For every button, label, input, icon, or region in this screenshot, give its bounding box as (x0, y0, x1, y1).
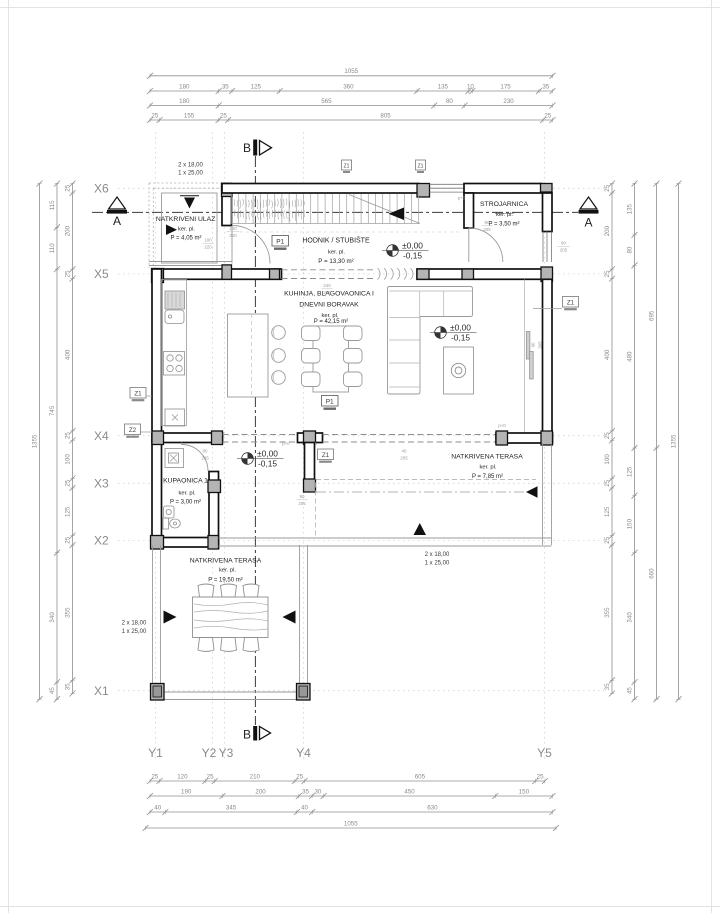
svg-text:120: 120 (177, 773, 188, 780)
svg-text:90: 90 (531, 342, 536, 347)
svg-text:Y2: Y2 (202, 746, 217, 760)
svg-text:KUPAONICA 1: KUPAONICA 1 (163, 478, 208, 485)
svg-text:45: 45 (627, 687, 634, 694)
svg-text:25: 25 (207, 773, 214, 780)
svg-text:205: 205 (298, 501, 306, 506)
svg-text:695: 695 (649, 310, 656, 321)
svg-text:X6: X6 (94, 182, 109, 196)
svg-text:125: 125 (604, 506, 611, 517)
svg-text:100: 100 (65, 454, 72, 465)
svg-text:35: 35 (604, 683, 611, 690)
svg-text:25: 25 (604, 270, 611, 277)
svg-text:DNEVNI BORAVAK: DNEVNI BORAVAK (299, 302, 359, 309)
svg-text:40: 40 (154, 804, 161, 811)
svg-text:240: 240 (323, 283, 331, 288)
svg-text:ker. pl.: ker. pl. (496, 212, 513, 218)
svg-text:10: 10 (467, 83, 474, 90)
svg-text:100: 100 (204, 238, 212, 243)
svg-text:125: 125 (65, 506, 72, 517)
svg-text:210: 210 (250, 773, 261, 780)
svg-text:745: 745 (49, 405, 56, 416)
svg-text:25: 25 (604, 479, 611, 486)
svg-text:660: 660 (649, 568, 656, 579)
svg-text:25: 25 (537, 773, 544, 780)
svg-text:±0,00: ±0,00 (402, 241, 423, 251)
svg-text:P1: P1 (276, 239, 284, 246)
svg-text:25: 25 (604, 184, 611, 191)
svg-text:80: 80 (203, 449, 208, 454)
svg-text:p+0: p+0 (282, 441, 290, 446)
svg-text:30: 30 (314, 788, 321, 795)
svg-text:25: 25 (65, 270, 72, 277)
svg-text:100: 100 (604, 454, 611, 465)
svg-text:205: 205 (538, 341, 543, 349)
svg-text:p+0: p+0 (498, 423, 506, 428)
svg-text:345: 345 (226, 804, 237, 811)
svg-text:125: 125 (251, 83, 262, 90)
svg-text:1 x 25,00: 1 x 25,00 (122, 629, 147, 635)
svg-text:P = 3,00 m²: P = 3,00 m² (170, 500, 201, 506)
svg-text:±0,00: ±0,00 (450, 323, 471, 333)
svg-text:2 x 18,00: 2 x 18,00 (178, 163, 203, 169)
svg-text:2 x 18,00: 2 x 18,00 (122, 621, 147, 627)
svg-text:1355: 1355 (32, 434, 39, 448)
svg-text:480: 480 (627, 351, 634, 362)
svg-text:Z1: Z1 (567, 300, 575, 307)
svg-text:360: 360 (343, 83, 354, 90)
svg-text:45: 45 (49, 687, 56, 694)
svg-text:1 x 25,00: 1 x 25,00 (178, 171, 203, 177)
svg-text:P = 7,85 m²: P = 7,85 m² (472, 474, 503, 480)
svg-text:X4: X4 (94, 429, 109, 443)
svg-text:180: 180 (179, 98, 190, 105)
svg-text:90: 90 (561, 241, 566, 246)
svg-text:P = 19,50 m²: P = 19,50 m² (208, 578, 242, 584)
svg-text:Z2: Z2 (129, 427, 137, 434)
svg-text:X1: X1 (94, 684, 109, 698)
svg-text:180: 180 (179, 83, 190, 90)
svg-text:25: 25 (65, 479, 72, 486)
svg-text:155: 155 (184, 112, 195, 119)
svg-text:25: 25 (296, 773, 303, 780)
svg-text:P = 3,50 m²: P = 3,50 m² (488, 222, 519, 228)
svg-text:205: 205 (323, 290, 331, 295)
svg-text:ker. pl.: ker. pl. (321, 313, 338, 319)
svg-text:25: 25 (220, 112, 227, 119)
svg-text:205: 205 (560, 248, 568, 253)
svg-text:190: 190 (181, 788, 192, 795)
svg-text:Y4: Y4 (296, 746, 311, 760)
svg-text:1055: 1055 (344, 820, 358, 827)
svg-text:Z1: Z1 (322, 452, 330, 459)
svg-text:B: B (243, 728, 251, 742)
svg-text:2 x 18,00: 2 x 18,00 (425, 552, 450, 558)
svg-text:220: 220 (229, 233, 237, 238)
svg-text:135: 135 (627, 203, 634, 214)
svg-text:35: 35 (542, 83, 549, 90)
svg-text:-0,15: -0,15 (451, 333, 470, 343)
svg-text:220: 220 (204, 245, 212, 250)
svg-text:25: 25 (604, 432, 611, 439)
svg-text:115: 115 (49, 200, 56, 210)
svg-text:A: A (584, 216, 592, 230)
svg-text:205: 205 (483, 227, 491, 232)
svg-text:A: A (113, 214, 121, 228)
svg-text:450: 450 (404, 788, 415, 795)
svg-text:X5: X5 (94, 267, 109, 281)
svg-text:ker. pl.: ker. pl. (328, 250, 345, 256)
svg-text:ker. pl.: ker. pl. (178, 226, 195, 232)
svg-text:100: 100 (229, 226, 237, 231)
svg-text:355: 355 (604, 607, 611, 618)
svg-text:P = 13,30 m²: P = 13,30 m² (318, 258, 353, 265)
svg-text:25: 25 (65, 536, 72, 543)
svg-text:P = 4,05 m²: P = 4,05 m² (170, 235, 201, 241)
svg-text:-0,15: -0,15 (258, 459, 277, 469)
svg-text:630: 630 (427, 804, 438, 811)
svg-text:ker. pl.: ker. pl. (219, 568, 236, 574)
svg-text:110: 110 (49, 243, 56, 253)
svg-text:Z1: Z1 (418, 164, 424, 170)
svg-text:ker. pl.: ker. pl. (178, 491, 195, 497)
svg-text:125: 125 (627, 466, 634, 477)
svg-text:605: 605 (415, 773, 426, 780)
svg-text:565: 565 (321, 98, 332, 105)
svg-text:35: 35 (302, 788, 309, 795)
svg-text:175: 175 (500, 83, 511, 90)
svg-text:Y5: Y5 (537, 746, 552, 760)
svg-text:90: 90 (300, 494, 305, 499)
svg-text:Z1: Z1 (344, 164, 350, 170)
svg-text:NATKRIVENA TERASA: NATKRIVENA TERASA (451, 454, 523, 461)
svg-text:X2: X2 (94, 534, 109, 548)
svg-text:25: 25 (544, 112, 551, 119)
svg-text:1355: 1355 (671, 434, 678, 448)
svg-text:40: 40 (301, 804, 308, 811)
svg-text:1055: 1055 (344, 68, 358, 75)
svg-text:HODNIK / STUBIŠTE: HODNIK / STUBIŠTE (302, 236, 370, 245)
svg-text:Y1: Y1 (148, 746, 163, 760)
svg-text:340: 340 (627, 612, 634, 623)
svg-text:90: 90 (485, 220, 490, 225)
svg-text:35: 35 (65, 683, 72, 690)
svg-text:340: 340 (49, 612, 56, 623)
svg-text:35: 35 (222, 83, 229, 90)
svg-text:355: 355 (65, 607, 72, 618)
svg-text:40: 40 (402, 449, 407, 454)
svg-text:805: 805 (380, 112, 391, 119)
svg-text:400: 400 (604, 349, 611, 360)
svg-text:B: B (243, 141, 251, 155)
svg-text:25: 25 (151, 773, 158, 780)
svg-text:205: 205 (201, 456, 209, 461)
svg-text:25: 25 (65, 184, 72, 191)
svg-text:P1: P1 (326, 399, 334, 406)
svg-text:p+0: p+0 (458, 196, 466, 201)
svg-text:P = 42,15 m²: P = 42,15 m² (314, 319, 348, 325)
svg-text:25: 25 (604, 536, 611, 543)
svg-text:400: 400 (65, 349, 72, 360)
svg-text:NATKRIVENA TERASA: NATKRIVENA TERASA (190, 558, 262, 565)
svg-text:Z1: Z1 (134, 391, 142, 398)
svg-text:200: 200 (604, 225, 611, 236)
svg-text:NATKRIVENI ULAZ: NATKRIVENI ULAZ (156, 216, 216, 223)
svg-text:Y3: Y3 (219, 746, 234, 760)
svg-text:150: 150 (627, 518, 634, 529)
svg-text:-0,15: -0,15 (403, 251, 422, 261)
svg-text:25: 25 (151, 112, 158, 119)
svg-text:205: 205 (400, 456, 408, 461)
svg-text:150: 150 (519, 788, 530, 795)
svg-text:ker. pl.: ker. pl. (479, 465, 496, 471)
svg-text:X3: X3 (94, 477, 109, 491)
svg-text:135: 135 (438, 83, 449, 90)
svg-text:200: 200 (65, 225, 72, 236)
svg-text:80: 80 (627, 246, 634, 253)
svg-text:80: 80 (446, 98, 453, 105)
svg-text:200: 200 (255, 788, 266, 795)
svg-text:25: 25 (65, 432, 72, 439)
svg-text:±0,00: ±0,00 (257, 449, 278, 459)
svg-text:230: 230 (503, 98, 514, 105)
svg-text:1 x 25,00: 1 x 25,00 (425, 561, 450, 567)
svg-text:STROJARNICA: STROJARNICA (480, 201, 528, 208)
